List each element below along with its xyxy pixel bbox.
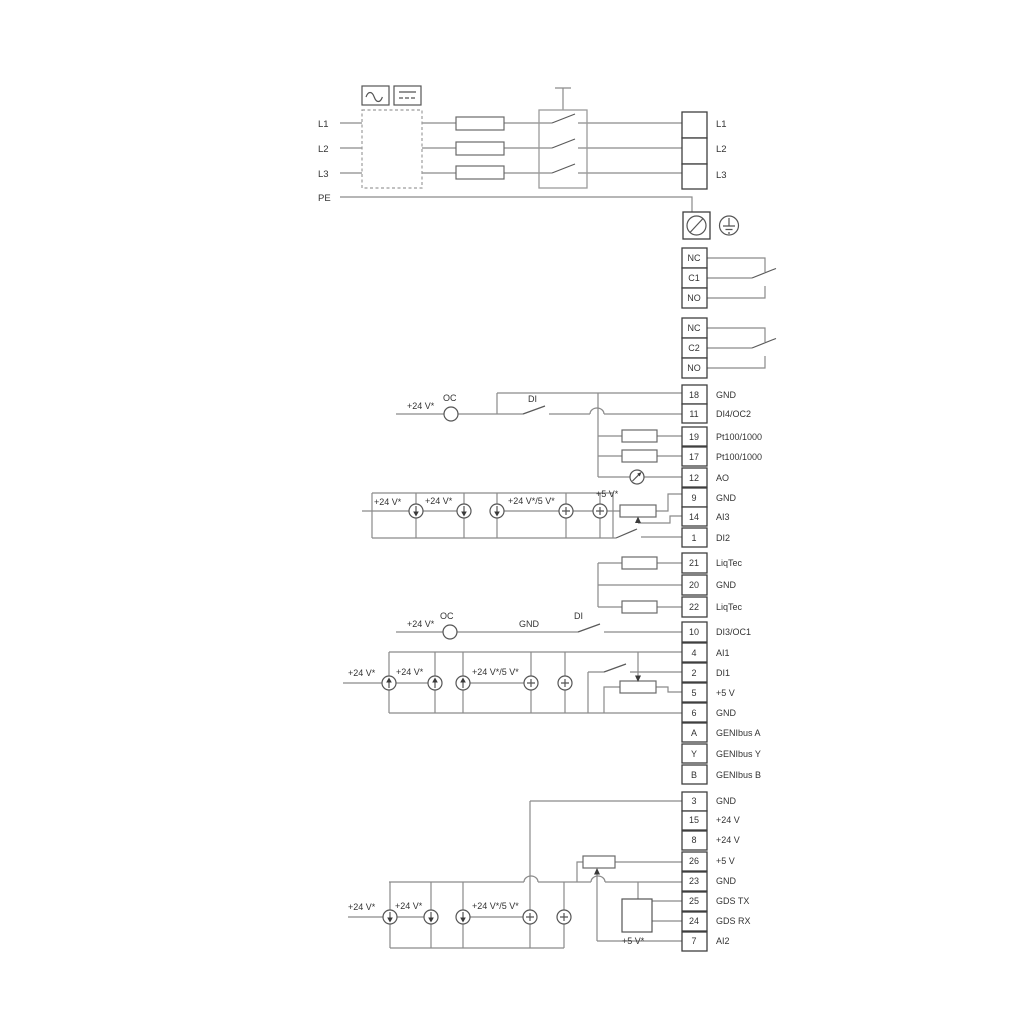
- terminal-8-number: 8: [691, 835, 696, 845]
- pt100-resistor-2: [622, 450, 657, 462]
- terminal-20-number: 20: [689, 580, 699, 590]
- label-di: DI: [574, 611, 583, 621]
- emc-filter-box: [362, 110, 422, 188]
- current-source-icon: [428, 676, 442, 690]
- terminal-b-number: B: [691, 770, 697, 780]
- relay-2-c2: C2: [688, 343, 700, 353]
- terminal-24-number: 24: [689, 916, 699, 926]
- terminal-8-label: +24 V: [716, 835, 740, 845]
- di4-switch-blade: [523, 406, 545, 414]
- terminal-17-label: Pt100/1000: [716, 452, 762, 462]
- terminal-12-label: AO: [716, 473, 729, 483]
- label-plus24: +24 V*: [407, 401, 435, 411]
- label-plus24: +24 V*: [396, 667, 424, 677]
- voltage-source-icon: [559, 504, 573, 518]
- wiring-diagram: L1 L2 L3 PE L1 L2 L3 NC C1 NO NC C2 NO: [0, 0, 1024, 1024]
- motor-terminal-l3: [682, 164, 707, 189]
- open-collector-icon: [444, 407, 458, 421]
- relay-1-wires: [707, 258, 765, 298]
- group3-circuits: +24 V* OC GND DI +24 V* +24 V* +24 V*/5 …: [343, 611, 682, 713]
- current-source-icon: [490, 504, 504, 518]
- terminal-5-label: +5 V: [716, 688, 735, 698]
- terminal-19-label: Pt100/1000: [716, 432, 762, 442]
- current-source-icon: [456, 910, 470, 924]
- terminal-19-number: 19: [689, 432, 699, 442]
- label-plus24: +24 V*: [374, 497, 402, 507]
- terminal-10-number: 10: [689, 627, 699, 637]
- terminal-7-label: AI2: [716, 936, 730, 946]
- open-collector-icon: [443, 625, 457, 639]
- label-plus24or5: +24 V*/5 V*: [508, 496, 555, 506]
- relay-2-contact-blade: [752, 339, 776, 349]
- earth-ground-icon: [720, 216, 739, 235]
- relay-1-no: NO: [687, 293, 701, 303]
- terminal-23-number: 23: [689, 876, 699, 886]
- group1-terminals: 18 GND 11 DI4/OC2 19 Pt100/1000 17 Pt100…: [682, 385, 762, 547]
- terminal-4-label: AI1: [716, 648, 730, 658]
- pt100-resistor-1: [622, 430, 657, 442]
- current-source-icon: [456, 676, 470, 690]
- terminal-6-number: 6: [691, 708, 696, 718]
- main-switch-box: [539, 110, 587, 188]
- input-label-l2: L2: [318, 144, 329, 155]
- motor-terminal-l2: [682, 138, 707, 164]
- terminal-24-label: GDS RX: [716, 916, 751, 926]
- current-source-icon: [383, 910, 397, 924]
- terminal-18-label: GND: [716, 390, 737, 400]
- ai2-potentiometer: [583, 856, 615, 868]
- label-gnd: GND: [519, 619, 540, 629]
- terminal-20-label: GND: [716, 580, 737, 590]
- voltage-source-icon: [523, 910, 537, 924]
- mains-wires: [340, 88, 692, 212]
- fuse-l1: [456, 117, 504, 130]
- terminal-9-label: GND: [716, 493, 737, 503]
- terminal-17-number: 17: [689, 452, 699, 462]
- gds-sensor-box: [622, 899, 652, 932]
- wire-hop: [590, 408, 604, 414]
- terminal-2-number: 2: [691, 668, 696, 678]
- terminal-a-number: A: [691, 728, 697, 738]
- dc-symbol-box: [394, 86, 421, 105]
- output-label-l2: L2: [716, 144, 727, 155]
- terminal-1-number: 1: [691, 533, 696, 543]
- label-plus5: +5 V*: [596, 489, 619, 499]
- relay-1-section: NC C1 NO: [682, 248, 776, 308]
- terminal-11-label: DI4/OC2: [716, 409, 751, 419]
- terminal-15-number: 15: [689, 815, 699, 825]
- terminal-1-label: DI2: [716, 533, 730, 543]
- terminal-6-label: GND: [716, 708, 737, 718]
- analog-output-meter-icon: [630, 470, 644, 484]
- terminal-a-label: GENIbus A: [716, 728, 761, 738]
- terminal-b-label: GENIbus B: [716, 770, 761, 780]
- terminal-14-label: AI3: [716, 512, 730, 522]
- input-label-l3: L3: [318, 169, 329, 180]
- terminal-21-number: 21: [689, 558, 699, 568]
- group3-terminals: 10 DI3/OC1 4 AI1 2 DI1 5 +5 V 6 GND A GE…: [682, 622, 761, 784]
- relay-1-contact-blade: [752, 269, 776, 279]
- relay-2-no: NO: [687, 363, 701, 373]
- relay-2-nc: NC: [688, 323, 701, 333]
- output-label-l3: L3: [716, 170, 727, 181]
- terminal-9-number: 9: [691, 493, 696, 503]
- wiring-diagram-page: L1 L2 L3 PE L1 L2 L3 NC C1 NO NC C2 NO: [0, 0, 1024, 1024]
- label-oc: OC: [440, 611, 454, 621]
- terminal-22-number: 22: [689, 602, 699, 612]
- group2-liqtec: 21 LiqTec 20 GND 22 LiqTec: [598, 553, 743, 617]
- pot-wiper-arrow: [594, 868, 600, 875]
- terminal-5-number: 5: [691, 688, 696, 698]
- di1-switch-blade: [604, 664, 626, 672]
- liqtec-sensor-2: [622, 601, 657, 613]
- relay-2-wires: [707, 328, 765, 368]
- terminal-25-number: 25: [689, 896, 699, 906]
- terminal-y-number: Y: [691, 749, 697, 759]
- label-plus24: +24 V*: [348, 668, 376, 678]
- current-source-icon: [382, 676, 396, 690]
- label-plus24: +24 V*: [425, 496, 453, 506]
- relay-1-nc: NC: [688, 253, 701, 263]
- group4-circuits: +24 V* +24 V* +24 V*/5 V* +5 V*: [348, 801, 682, 948]
- ai1-potentiometer: [620, 681, 656, 693]
- terminal-26-label: +5 V: [716, 856, 735, 866]
- fuse-l3: [456, 166, 504, 179]
- wire-hops: [524, 876, 605, 882]
- current-source-icon: [409, 504, 423, 518]
- terminal-21-label: LiqTec: [716, 558, 743, 568]
- power-section: L1 L2 L3 PE L1 L2 L3: [318, 86, 739, 239]
- label-di: DI: [528, 394, 537, 404]
- terminal-11-number: 11: [689, 409, 698, 419]
- liqtec-sensor-1: [622, 557, 657, 569]
- di2-switch-blade: [616, 529, 637, 538]
- fuse-l2: [456, 142, 504, 155]
- ai3-potentiometer: [620, 505, 656, 517]
- terminal-18-number: 18: [689, 390, 699, 400]
- terminal-3-label: GND: [716, 796, 737, 806]
- label-plus24or5: +24 V*/5 V*: [472, 667, 519, 677]
- terminal-22-label: LiqTec: [716, 602, 743, 612]
- terminal-y-label: GENIbus Y: [716, 749, 761, 759]
- label-plus24: +24 V*: [395, 901, 423, 911]
- label-plus5: +5 V*: [622, 936, 645, 946]
- group4-terminals: 3 GND 15 +24 V 8 +24 V 26 +5 V 23 GND 25…: [682, 792, 751, 951]
- input-label-pe: PE: [318, 193, 331, 204]
- terminal-3-number: 3: [691, 796, 696, 806]
- current-source-icon: [424, 910, 438, 924]
- current-source-icon: [457, 504, 471, 518]
- label-plus24: +24 V*: [407, 619, 435, 629]
- terminal-26-number: 26: [689, 856, 699, 866]
- label-plus24: +24 V*: [348, 902, 376, 912]
- voltage-source-icon: [558, 676, 572, 690]
- motor-terminal-l1: [682, 112, 707, 138]
- label-oc: OC: [443, 393, 457, 403]
- main-switch-blades: [552, 114, 575, 173]
- voltage-source-icon: [593, 504, 607, 518]
- terminal-15-label: +24 V: [716, 815, 740, 825]
- voltage-source-icon: [524, 676, 538, 690]
- relay-2-section: NC C2 NO: [682, 318, 776, 378]
- terminal-23-label: GND: [716, 876, 737, 886]
- label-plus24or5: +24 V*/5 V*: [472, 901, 519, 911]
- voltage-source-icon: [557, 910, 571, 924]
- output-label-l1: L1: [716, 119, 727, 130]
- terminal-4-number: 4: [691, 648, 696, 658]
- terminal-10-label: DI3/OC1: [716, 627, 751, 637]
- terminal-12-number: 12: [689, 473, 699, 483]
- input-label-l1: L1: [318, 119, 329, 130]
- terminal-25-label: GDS TX: [716, 896, 749, 906]
- terminal-14-number: 14: [689, 512, 699, 522]
- group1-circuits: +24 V* OC DI +24 V* +24 V* +24 V*/5 V* +…: [362, 393, 682, 538]
- terminal-7-number: 7: [691, 936, 696, 946]
- di3-switch-blade: [578, 624, 600, 632]
- terminal-2-label: DI1: [716, 668, 730, 678]
- relay-1-c1: C1: [688, 273, 700, 283]
